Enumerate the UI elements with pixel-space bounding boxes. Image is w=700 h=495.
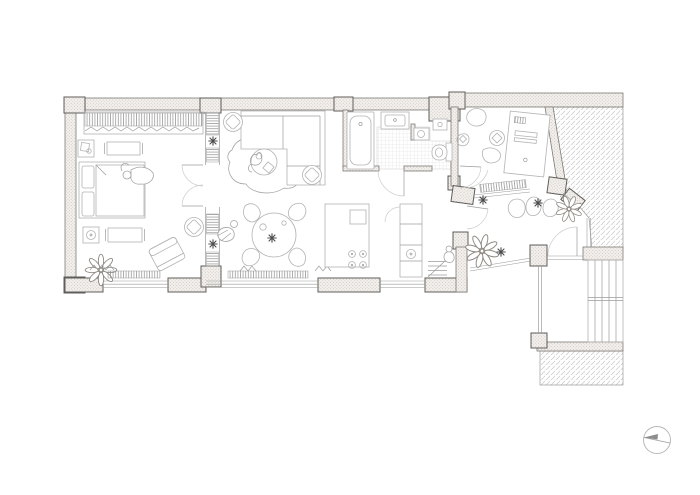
pebble-stones	[508, 197, 558, 218]
entry-steps	[428, 259, 447, 277]
kitchen-east-wall	[456, 247, 467, 292]
shelf-bank	[207, 113, 219, 135]
tall-counter-with-sink	[385, 204, 422, 277]
beanbag	[467, 109, 486, 127]
shelf-bank	[207, 252, 219, 266]
entry-door-swing	[548, 227, 577, 256]
window-curtain	[240, 266, 256, 271]
appliance-niche	[414, 119, 447, 140]
pouf	[303, 166, 322, 185]
stair-flight	[588, 260, 623, 342]
round-table	[252, 213, 296, 257]
wc	[432, 143, 452, 161]
nightstand	[83, 227, 99, 243]
island-with-hob	[325, 204, 369, 268]
study-north-wall	[452, 93, 623, 107]
double-swing-doors	[182, 165, 203, 206]
floor-plan-canvas	[0, 0, 700, 495]
kitchen-door-swing	[467, 206, 488, 229]
stairwell-north-wall	[583, 247, 623, 260]
wardrobe	[84, 112, 203, 134]
rug	[106, 228, 145, 242]
shelf-bank	[207, 214, 219, 234]
adjacent-building-hatch-southeast	[537, 342, 623, 385]
rug	[105, 142, 143, 155]
stairwell-south-wall	[537, 342, 623, 351]
beanbag-rock	[457, 134, 469, 146]
table-plant	[268, 234, 276, 242]
desk-chair	[490, 131, 505, 146]
pouf	[185, 218, 204, 237]
potted-plant	[534, 199, 542, 207]
shelving-partition	[182, 113, 220, 266]
dining-area	[217, 200, 309, 270]
bedroom	[78, 112, 204, 286]
bathtub	[347, 112, 374, 169]
coffee-table	[251, 149, 277, 175]
stairwell	[588, 260, 623, 342]
west-wall	[65, 98, 76, 292]
potted-plant	[209, 137, 217, 145]
shelf-bank	[207, 148, 219, 162]
armchair	[148, 236, 186, 271]
washbasin	[381, 112, 409, 129]
entry-pier	[530, 245, 547, 266]
bathroom-door-swing	[378, 170, 404, 196]
partition-north-pier	[200, 98, 221, 113]
leaf-plant	[85, 254, 117, 286]
radiator	[228, 271, 308, 278]
study-radiator	[480, 180, 527, 193]
north-arrow-compass	[644, 427, 671, 454]
potted-plant	[479, 196, 487, 204]
north-wall	[65, 98, 432, 110]
radiator	[108, 271, 160, 278]
toilet	[432, 143, 452, 161]
study	[457, 109, 550, 193]
kitchen	[325, 204, 454, 277]
person-seated	[217, 221, 238, 242]
side-table	[78, 140, 94, 157]
beanbag	[482, 148, 500, 163]
potted-plant	[209, 240, 217, 248]
pouf	[224, 113, 243, 132]
desk-with-monitor	[504, 111, 550, 177]
